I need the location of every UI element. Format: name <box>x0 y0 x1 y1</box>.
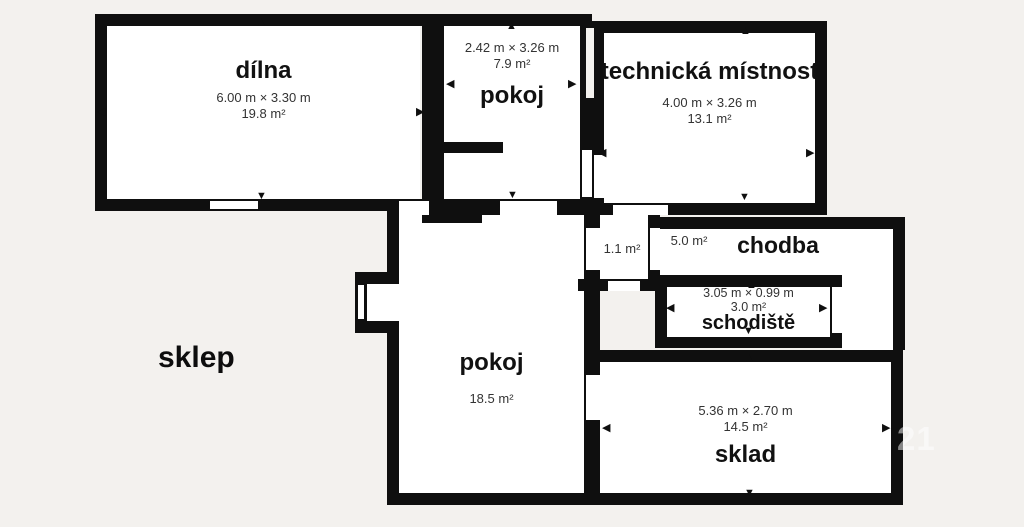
door-opening <box>830 287 842 333</box>
room-name: sklad <box>600 441 891 469</box>
room-technicka-label: technická místnost 4.00 m × 3.26 m 13.1 … <box>596 58 823 127</box>
room-area: 1.1 m² <box>592 241 652 257</box>
wall-segment <box>655 337 842 348</box>
room-schodiste-label: 3.05 m × 0.99 m 3.0 m² schodiště <box>667 286 830 332</box>
room-area: 13.1 m² <box>596 111 823 127</box>
arrow-left-icon: ◀ <box>97 107 105 118</box>
room-name: schodiště <box>667 314 830 332</box>
room-pokoj-dolni-label: pokoj 18.5 m² <box>399 349 584 407</box>
arrow-down-icon: ▼ <box>507 190 518 201</box>
room-area: 14.5 m² <box>600 419 891 435</box>
room-name: technická místnost <box>596 58 823 86</box>
room-pokoj-dolni-bay-floor <box>365 284 399 321</box>
window-opening <box>356 285 366 319</box>
watermark: 21 <box>897 420 936 458</box>
wall-segment <box>387 203 399 273</box>
room-area: 7.9 m² <box>444 56 580 72</box>
arrow-down-icon: ▼ <box>256 191 267 202</box>
room-chodba-label: chodba <box>698 232 858 258</box>
door-opening <box>592 155 604 198</box>
door-opening <box>584 375 600 420</box>
room-name: chodba <box>698 232 858 258</box>
room-area: 19.8 m² <box>107 106 420 122</box>
wall-segment <box>444 142 503 153</box>
wall-segment <box>648 217 905 229</box>
room-sklad-label: 5.36 m × 2.70 m 14.5 m² sklad <box>600 403 891 469</box>
room-name: dílna <box>107 57 420 85</box>
room-dims: 5.36 m × 2.70 m <box>600 403 891 419</box>
room-dims: 4.00 m × 3.26 m <box>596 95 823 111</box>
wall-segment <box>387 321 399 505</box>
arrow-down-icon: ▼ <box>744 488 755 499</box>
plan-title: sklep <box>158 341 235 375</box>
window-opening <box>210 199 258 211</box>
wall-segment <box>592 21 827 33</box>
arrow-down-icon: ▼ <box>739 192 750 203</box>
arrow-up-icon: ▲ <box>740 26 751 37</box>
door-opening <box>399 199 429 215</box>
wall-segment <box>95 14 592 26</box>
room-name: pokoj <box>399 349 584 377</box>
arrow-up-icon: ▲ <box>744 353 755 364</box>
door-opening <box>608 279 640 291</box>
room-dilna-label: dílna 6.00 m × 3.30 m 19.8 m² <box>107 57 420 122</box>
room-dims: 3.05 m × 0.99 m <box>667 286 830 300</box>
room-pokoj-top-label: 2.42 m × 3.26 m 7.9 m² pokoj <box>444 40 580 110</box>
arrow-up-icon: ▲ <box>506 21 517 32</box>
door-opening <box>500 199 557 215</box>
wall-segment <box>422 14 444 223</box>
room-name: pokoj <box>444 82 580 110</box>
room-dims: 2.42 m × 3.26 m <box>444 40 580 56</box>
floor-plan: ▲ ◀ ▶ ▼ ▲ ◀ ▶ ▼ ▲ ◀ ▶ ▼ ▲ ◀ ▶ ▼ ▲ ◀ ▶ ▼ … <box>0 0 1024 527</box>
door-opening <box>613 203 668 215</box>
room-mala-label: 1.1 m² <box>592 241 652 257</box>
arrow-left-icon: ◀ <box>598 148 606 159</box>
arrow-right-icon: ▶ <box>806 148 814 159</box>
arrow-up-icon: ▲ <box>256 17 267 28</box>
wall-segment <box>387 493 600 505</box>
room-area: 18.5 m² <box>399 391 584 407</box>
wall-segment <box>893 217 905 350</box>
wall-void <box>586 28 594 98</box>
door-opening <box>580 150 592 197</box>
room-dims: 6.00 m × 3.30 m <box>107 90 420 106</box>
